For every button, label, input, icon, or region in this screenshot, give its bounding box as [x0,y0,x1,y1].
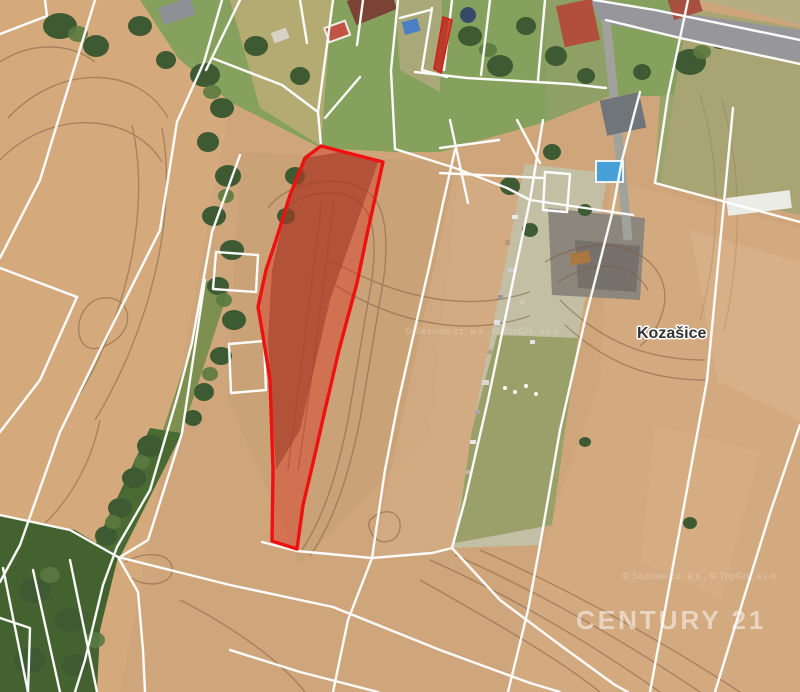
aerial-map[interactable]: © Seznam.cz, a.s., © TopGis, s.r.o. © Se… [0,0,800,692]
map-attribution-2: © Seznam.cz, a.s., © TopGis, s.r.o. [622,571,779,581]
map-canvas[interactable]: © Seznam.cz, a.s., © TopGis, s.r.o. © Se… [0,0,800,692]
map-attribution: © Seznam.cz, a.s., © TopGis, s.r.o. [405,326,562,336]
brand-watermark: CENTURY 21 [576,605,766,635]
place-label: Kozašice [637,325,706,342]
trampoline [460,7,476,23]
fields-layer [0,0,800,692]
